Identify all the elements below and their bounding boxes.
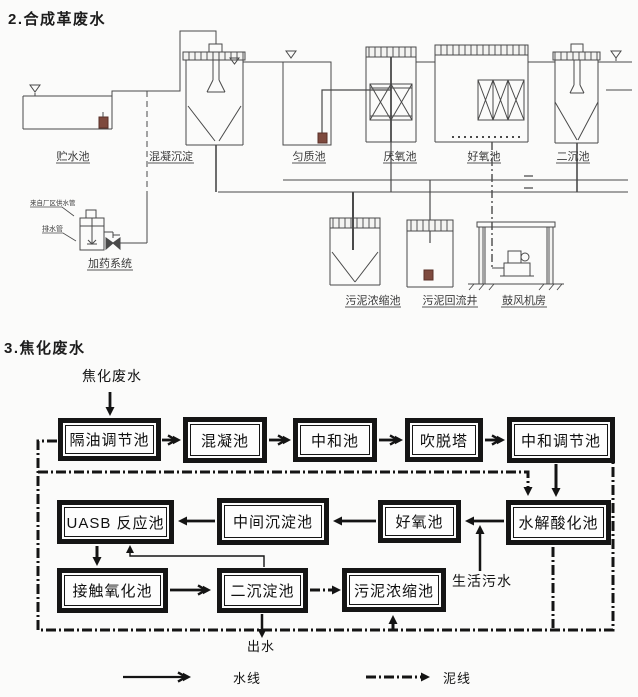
recycle-line [130, 550, 264, 567]
flow-box-aerobic: 好氧池 [378, 500, 461, 543]
legend-water-label: 水线 [233, 668, 261, 687]
flow-box-label: 二沉淀池 [230, 580, 294, 601]
flow-box-label: 隔油调节池 [69, 429, 149, 450]
flow-box-stripping-tower: 吹脱塔 [405, 418, 483, 462]
flow-box-label: 中间沉淀池 [233, 511, 313, 532]
flow-box-label: 好氧池 [395, 511, 443, 532]
flow-box-label: 中和池 [311, 430, 359, 451]
flow-box-label: 水解酸化池 [518, 512, 598, 533]
flow-box-intermediate-sedimentation: 中间沉淀池 [217, 498, 329, 545]
domestic-sewage-label: 生活污水 [452, 571, 512, 591]
effluent-label: 出水 [247, 636, 275, 655]
flow-box-label: 吹脱塔 [420, 430, 468, 451]
sludge-lines [38, 441, 613, 677]
flow-box-uasb-reactor: UASB 反应池 [57, 500, 174, 544]
flow-box-neutralization-regulating: 中和调节池 [507, 417, 615, 463]
flow-box-label: UASB 反应池 [66, 512, 164, 533]
influent-label: 焦化废水 [82, 366, 142, 386]
flow-box-contact-oxidation: 接触氧化池 [57, 568, 168, 613]
flow-box-label: 污泥浓缩池 [354, 580, 434, 601]
page: 2.合成革废水 [0, 0, 638, 697]
flow-box-secondary-sedimentation: 二沉淀池 [217, 568, 308, 613]
flow-box-label: 中和调节池 [521, 430, 601, 451]
flow-box-label: 接触氧化池 [72, 580, 152, 601]
flow-box-neutralization: 中和池 [293, 418, 377, 462]
flow-box-label: 混凝池 [201, 430, 249, 451]
flow-box-coagulation: 混凝池 [183, 417, 267, 463]
flow-box-hydrolysis-acidification: 水解酸化池 [506, 500, 611, 545]
flow-box-oil-separation: 隔油调节池 [58, 418, 161, 461]
legend-sludge-label: 泥线 [443, 668, 471, 687]
flow-box-sludge-thickener: 污泥浓缩池 [342, 568, 446, 612]
